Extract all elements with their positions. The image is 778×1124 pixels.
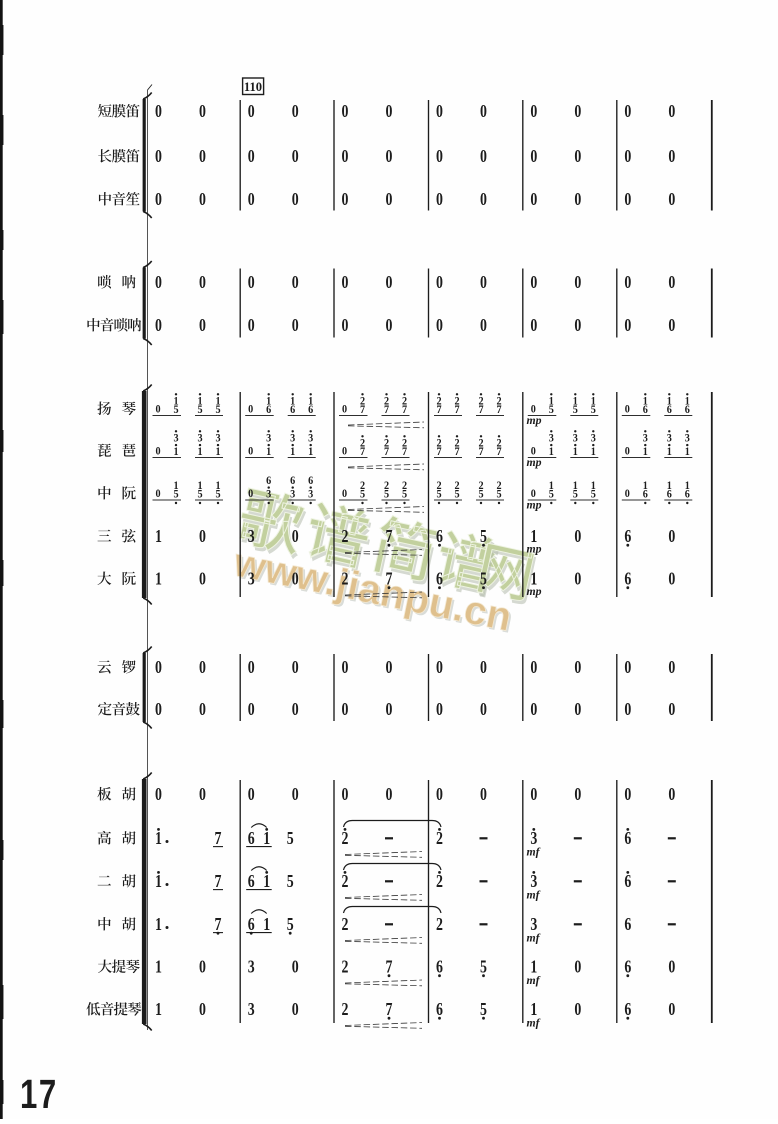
svg-text:0: 0 [155,403,160,416]
svg-text:0: 0 [292,786,299,805]
svg-text:0: 0 [436,317,443,336]
svg-text:5: 5 [197,403,202,416]
svg-text:17: 17 [20,1071,58,1117]
svg-text:1: 1 [155,1001,162,1020]
svg-text:0: 0 [530,786,537,805]
svg-text:5: 5 [287,873,294,892]
svg-text:0: 0 [668,103,675,122]
svg-text:0: 0 [342,103,349,122]
svg-text:0: 0 [480,191,487,210]
svg-text:0: 0 [342,317,349,336]
svg-text:5: 5 [197,488,202,501]
svg-text:1: 1 [573,445,578,458]
svg-text:0: 0 [342,148,349,167]
svg-text:5: 5 [549,488,554,501]
svg-text:6: 6 [667,488,672,501]
svg-text:3: 3 [248,1001,255,1020]
svg-text:0: 0 [248,103,255,122]
svg-text:5: 5 [173,488,178,501]
svg-text:0: 0 [292,103,299,122]
svg-text:3: 3 [308,488,313,501]
svg-text:5: 5 [454,488,459,501]
svg-text:0: 0 [574,528,581,547]
svg-text:3: 3 [248,570,255,589]
svg-text:2: 2 [342,528,349,547]
svg-text:1: 1 [155,570,162,589]
svg-text:0: 0 [574,191,581,210]
svg-text:6: 6 [248,830,255,849]
svg-text:6: 6 [436,958,443,977]
svg-text:0: 0 [436,786,443,805]
svg-text:7: 7 [215,873,222,892]
svg-text:0: 0 [386,148,393,167]
svg-text:0: 0 [625,487,630,500]
svg-text:6: 6 [436,1001,443,1020]
svg-text:0: 0 [248,487,253,500]
svg-text:1: 1 [266,445,271,458]
svg-text:1: 1 [667,445,672,458]
svg-text:0: 0 [436,103,443,122]
svg-text:0: 0 [624,701,631,720]
svg-text:0: 0 [199,148,206,167]
svg-text:0: 0 [155,148,162,167]
svg-text:6: 6 [643,488,648,501]
svg-text:0: 0 [199,191,206,210]
svg-text:5: 5 [173,403,178,416]
svg-text:2: 2 [436,916,443,935]
svg-text:3: 3 [197,432,202,445]
svg-text:0: 0 [386,103,393,122]
svg-text:0: 0 [342,786,349,805]
svg-text:1: 1 [308,445,313,458]
svg-text:1: 1 [643,445,648,458]
svg-text:6: 6 [624,570,631,589]
svg-text:mf: mf [527,931,541,945]
svg-text:0: 0 [480,103,487,122]
svg-text:5: 5 [360,488,365,501]
svg-text:5: 5 [287,830,294,849]
svg-text:0: 0 [624,786,631,805]
svg-text:0: 0 [292,191,299,210]
svg-text:6: 6 [290,474,295,487]
svg-text:mf: mf [527,1016,541,1030]
svg-text:3: 3 [248,958,255,977]
svg-text:7: 7 [386,958,393,977]
svg-text:3: 3 [643,432,648,445]
svg-text:2: 2 [342,873,349,892]
svg-text:1: 1 [155,958,162,977]
svg-text:2: 2 [342,1001,349,1020]
svg-text:0: 0 [574,570,581,589]
svg-text:0: 0 [625,445,630,458]
svg-text:0: 0 [530,103,537,122]
svg-text:5: 5 [478,488,483,501]
svg-text:0: 0 [248,786,255,805]
svg-text:0: 0 [155,659,162,678]
svg-text:5: 5 [287,916,294,935]
svg-text:0: 0 [199,317,206,336]
svg-text:5: 5 [402,488,407,501]
svg-text:1: 1 [155,873,162,892]
svg-text:0: 0 [480,274,487,293]
svg-text:1: 1 [685,445,690,458]
svg-text:2: 2 [342,916,349,935]
svg-text:0: 0 [668,274,675,293]
svg-text:3: 3 [248,528,255,547]
svg-text:6: 6 [248,873,255,892]
svg-text:0: 0 [292,528,299,547]
svg-text:3: 3 [667,432,672,445]
svg-text:7: 7 [436,403,441,416]
svg-text:0: 0 [668,148,675,167]
svg-text:7: 7 [478,403,483,416]
svg-text:0: 0 [574,659,581,678]
svg-text:6: 6 [624,873,631,892]
svg-text:7: 7 [454,403,459,416]
svg-text:0: 0 [668,786,675,805]
svg-text:6: 6 [308,403,313,416]
svg-text:0: 0 [342,191,349,210]
svg-text:5: 5 [215,403,220,416]
svg-text:3: 3 [215,432,220,445]
svg-text:3: 3 [573,432,578,445]
svg-text:7: 7 [360,403,365,416]
svg-text:0: 0 [480,659,487,678]
svg-text:5: 5 [436,488,441,501]
svg-text:2: 2 [436,873,443,892]
svg-text:2: 2 [342,570,349,589]
svg-text:0: 0 [292,958,299,977]
svg-text:0: 0 [574,1001,581,1020]
svg-text:0: 0 [574,701,581,720]
svg-text:7: 7 [454,445,459,458]
svg-text:0: 0 [480,148,487,167]
svg-text:3: 3 [290,432,295,445]
svg-text:0: 0 [668,701,675,720]
svg-text:0: 0 [480,701,487,720]
svg-text:6: 6 [248,916,255,935]
svg-text:0: 0 [436,659,443,678]
svg-text:0: 0 [248,317,255,336]
svg-text:0: 0 [292,274,299,293]
svg-text:1: 1 [197,445,202,458]
svg-text:5: 5 [384,488,389,501]
svg-text:0: 0 [342,403,347,416]
svg-text:0: 0 [248,148,255,167]
svg-text:6: 6 [624,528,631,547]
svg-text:1: 1 [591,445,596,458]
svg-text:0: 0 [436,148,443,167]
svg-text:0: 0 [386,191,393,210]
svg-text:0: 0 [342,701,349,720]
svg-text:7: 7 [436,445,441,458]
svg-text:0: 0 [342,445,347,458]
svg-text:0: 0 [199,528,206,547]
svg-text:0: 0 [436,191,443,210]
svg-text:0: 0 [624,191,631,210]
svg-text:5: 5 [591,488,596,501]
svg-text:0: 0 [155,191,162,210]
svg-text:0: 0 [248,274,255,293]
svg-text:3: 3 [549,432,554,445]
svg-text:1: 1 [155,916,162,935]
svg-text:5: 5 [591,403,596,416]
svg-text:0: 0 [155,274,162,293]
svg-text:0: 0 [199,274,206,293]
svg-text:0: 0 [530,317,537,336]
svg-text:5: 5 [496,488,501,501]
svg-text:0: 0 [199,103,206,122]
svg-text:0: 0 [574,958,581,977]
svg-text:0: 0 [248,701,255,720]
svg-text:0: 0 [668,958,675,977]
svg-text:0: 0 [624,659,631,678]
svg-text:0: 0 [292,701,299,720]
svg-text:0: 0 [574,274,581,293]
svg-text:2: 2 [436,830,443,849]
svg-text:0: 0 [342,659,349,678]
svg-text:7: 7 [384,445,389,458]
svg-text:7: 7 [386,528,393,547]
svg-text:0: 0 [386,317,393,336]
svg-text:0: 0 [624,317,631,336]
svg-text:mf: mf [527,888,541,902]
svg-text:mf: mf [527,845,541,859]
svg-text:0: 0 [248,403,253,416]
svg-text:7: 7 [384,403,389,416]
svg-text:1: 1 [155,528,162,547]
svg-text:2: 2 [342,830,349,849]
svg-text:0: 0 [624,274,631,293]
svg-text:3: 3 [308,432,313,445]
svg-text:0: 0 [386,659,393,678]
svg-text:1: 1 [155,830,162,849]
svg-text:0: 0 [624,148,631,167]
svg-text:5: 5 [480,958,487,977]
svg-text:3: 3 [266,488,271,501]
svg-text:3: 3 [266,432,271,445]
svg-text:6: 6 [667,403,672,416]
svg-text:7: 7 [360,445,365,458]
svg-text:0: 0 [386,786,393,805]
svg-text:0: 0 [199,786,206,805]
svg-text:6: 6 [266,474,271,487]
svg-text:0: 0 [436,701,443,720]
svg-text:mp: mp [527,584,542,598]
svg-text:0: 0 [530,191,537,210]
svg-text:0: 0 [668,659,675,678]
svg-text:5: 5 [573,403,578,416]
svg-text:mf: mf [527,973,541,987]
svg-text:0: 0 [199,701,206,720]
svg-text:7: 7 [386,1001,393,1020]
svg-text:6: 6 [624,1001,631,1020]
svg-text:1: 1 [215,445,220,458]
svg-text:0: 0 [530,701,537,720]
svg-text:1: 1 [263,830,270,849]
svg-text:0: 0 [199,659,206,678]
svg-text:0: 0 [668,317,675,336]
svg-text:7: 7 [402,403,407,416]
svg-text:0: 0 [248,191,255,210]
svg-text:3: 3 [591,432,596,445]
svg-text:6: 6 [624,830,631,849]
svg-text:6: 6 [436,570,443,589]
svg-text:1: 1 [549,445,554,458]
svg-text:0: 0 [155,445,160,458]
svg-text:mp: mp [527,498,542,512]
svg-text:6: 6 [624,916,631,935]
svg-text:0: 0 [530,274,537,293]
svg-text:0: 0 [386,274,393,293]
svg-text:mp: mp [527,542,542,556]
svg-text:0: 0 [480,317,487,336]
svg-text:6: 6 [685,403,690,416]
svg-text:0: 0 [668,570,675,589]
svg-text:7: 7 [496,445,501,458]
svg-text:1: 1 [263,916,270,935]
svg-text:0: 0 [292,148,299,167]
svg-text:3: 3 [685,432,690,445]
svg-text:5: 5 [549,403,554,416]
svg-text:0: 0 [155,786,162,805]
svg-text:7: 7 [496,403,501,416]
svg-text:6: 6 [643,403,648,416]
svg-text:0: 0 [342,487,347,500]
svg-text:5: 5 [480,528,487,547]
svg-text:2: 2 [342,958,349,977]
svg-text:5: 5 [480,570,487,589]
svg-text:0: 0 [574,103,581,122]
svg-text:0: 0 [199,570,206,589]
svg-text:3: 3 [173,432,178,445]
svg-text:0: 0 [199,1001,206,1020]
svg-text:0: 0 [530,148,537,167]
svg-text:1: 1 [290,445,295,458]
svg-text:7: 7 [215,916,222,935]
svg-text:1: 1 [263,873,270,892]
svg-text:7: 7 [402,445,407,458]
svg-text:0: 0 [624,103,631,122]
svg-text:5: 5 [573,488,578,501]
svg-text:6: 6 [290,403,295,416]
svg-text:5: 5 [480,1001,487,1020]
svg-text:0: 0 [292,659,299,678]
svg-text:0: 0 [668,1001,675,1020]
svg-text:0: 0 [342,274,349,293]
svg-text:0: 0 [155,103,162,122]
svg-text:0: 0 [530,659,537,678]
svg-text:0: 0 [574,317,581,336]
svg-text:0: 0 [625,403,630,416]
svg-text:3: 3 [290,488,295,501]
svg-text:0: 0 [386,701,393,720]
svg-text:0: 0 [199,958,206,977]
svg-text:0: 0 [155,701,162,720]
svg-text:6: 6 [685,488,690,501]
svg-text:1: 1 [173,445,178,458]
svg-text:0: 0 [292,570,299,589]
svg-text:0: 0 [155,317,162,336]
svg-text:7: 7 [386,570,393,589]
svg-text:0: 0 [574,786,581,805]
svg-text:0: 0 [292,1001,299,1020]
svg-text:0: 0 [668,528,675,547]
svg-text:0: 0 [248,659,255,678]
svg-text:110: 110 [244,80,262,94]
svg-text:0: 0 [574,148,581,167]
svg-text:7: 7 [215,830,222,849]
svg-text:mp: mp [527,455,542,469]
svg-text:6: 6 [308,474,313,487]
svg-text:mp: mp [527,413,542,427]
svg-text:0: 0 [248,445,253,458]
svg-text:7: 7 [478,445,483,458]
svg-text:0: 0 [155,487,160,500]
svg-text:0: 0 [292,317,299,336]
svg-text:5: 5 [215,488,220,501]
svg-text:6: 6 [266,403,271,416]
svg-text:0: 0 [436,274,443,293]
svg-text:0: 0 [480,786,487,805]
svg-text:6: 6 [436,528,443,547]
svg-text:0: 0 [668,191,675,210]
svg-text:6: 6 [624,958,631,977]
